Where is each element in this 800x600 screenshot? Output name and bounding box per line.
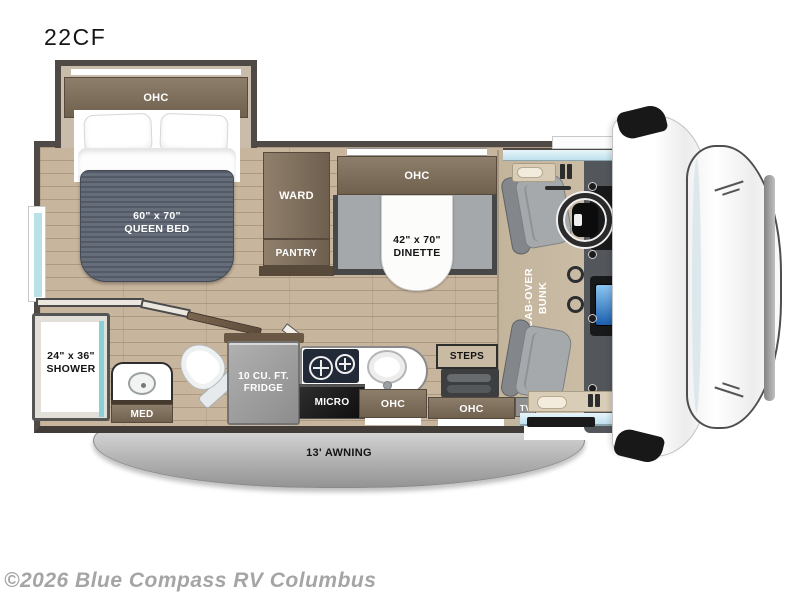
entry-door-sill xyxy=(438,419,504,426)
queen-bed-name: QUEEN BED xyxy=(92,223,222,236)
ward-label: WARD xyxy=(264,153,329,240)
dash-screw-3 xyxy=(588,314,597,323)
pantry-label: PANTRY xyxy=(264,240,329,267)
dinette-ohc-cabinet: OHC xyxy=(337,156,497,195)
bedroom-window xyxy=(28,206,46,302)
dinette-ohc-label: OHC xyxy=(338,157,496,196)
dinette-label: 42" x 70" DINETTE xyxy=(382,234,452,260)
cooktop xyxy=(303,349,359,383)
step-tread-1 xyxy=(447,374,491,382)
dash-screw-1 xyxy=(588,182,597,191)
dealer-watermark: ©2026 Blue Compass RV Columbus xyxy=(4,569,376,593)
bedroom-window-glass xyxy=(34,213,42,297)
dash-vent-2 xyxy=(567,164,572,179)
kitchen-ohc-label: OHC xyxy=(360,390,426,419)
queen-bed-label: 60" x 70" QUEEN BED xyxy=(92,210,222,236)
page-title: 22CF xyxy=(44,24,106,51)
bath-sink-drain xyxy=(141,383,146,388)
shower: 24" x 36" SHOWER xyxy=(32,313,110,421)
dinette-size: 42" x 70" xyxy=(382,234,452,247)
steps-label: STEPS xyxy=(438,346,496,367)
door-vent-1 xyxy=(588,394,593,407)
dash-screw-2 xyxy=(588,250,597,259)
slideout-window xyxy=(71,69,241,75)
dinette-window xyxy=(347,148,487,156)
hood-glass-sliver xyxy=(692,159,701,413)
windshield-top xyxy=(503,148,628,161)
steering-wheel xyxy=(558,193,612,247)
hood-crease-2 xyxy=(722,188,740,195)
med-label: MED xyxy=(112,405,172,424)
wardrobe: WARD xyxy=(263,152,330,239)
fridge: 10 CU. FT. FRIDGE xyxy=(227,341,300,425)
steering-hub xyxy=(572,203,598,237)
burner-left xyxy=(309,356,333,380)
steering-hub-cap xyxy=(574,214,582,226)
dash-vent-1 xyxy=(560,164,565,179)
step-tread-2 xyxy=(447,385,491,393)
cupholder-2 xyxy=(567,296,584,313)
entry-ohc-cabinet: OHC xyxy=(428,397,515,419)
hood xyxy=(686,145,782,429)
med-cabinet: MED xyxy=(111,404,173,423)
front-bumper xyxy=(764,175,775,401)
cupholder-1 xyxy=(567,266,584,283)
awning-label: 13' AWNING xyxy=(214,447,464,459)
shower-size: 24" x 36" xyxy=(35,350,107,363)
partition-wall xyxy=(36,298,144,307)
micro-label: MICRO xyxy=(300,385,364,420)
pantry: PANTRY xyxy=(263,239,330,266)
kitchen-window-sill xyxy=(365,418,421,425)
step-well xyxy=(441,369,499,397)
kitchen-ohc-cabinet: OHC xyxy=(359,389,427,418)
shower-name: SHOWER xyxy=(35,363,107,376)
microwave: MICRO xyxy=(299,384,365,419)
pantry-base xyxy=(259,266,334,276)
glovebox-handle xyxy=(517,167,543,178)
fridge-size: 10 CU. FT. xyxy=(229,371,298,383)
entry-ohc-label: OHC xyxy=(429,398,514,420)
rv-floorplan: 22CF 13' AWNING OHC 60" x 70" QUEEN BED … xyxy=(0,0,800,600)
entry-step-bar xyxy=(527,417,595,427)
fridge-label: 10 CU. FT. FRIDGE xyxy=(229,371,298,395)
kitchen-sink xyxy=(367,350,407,384)
dash-trim-line xyxy=(545,186,571,190)
burner-right xyxy=(335,354,355,374)
awning: 13' AWNING xyxy=(93,431,585,488)
fridge-name: FRIDGE xyxy=(229,383,298,395)
dinette-table: 42" x 70" DINETTE xyxy=(381,195,453,291)
dinette-name: DINETTE xyxy=(382,247,452,260)
steps: STEPS xyxy=(436,344,498,369)
dash-trim-top xyxy=(512,163,556,182)
queen-bed-size: 60" x 70" xyxy=(92,210,222,223)
bath-sink xyxy=(128,372,156,395)
door-vent-2 xyxy=(595,394,600,407)
cab-door-handle xyxy=(537,396,567,409)
shower-label: 24" x 36" SHOWER xyxy=(35,350,107,376)
